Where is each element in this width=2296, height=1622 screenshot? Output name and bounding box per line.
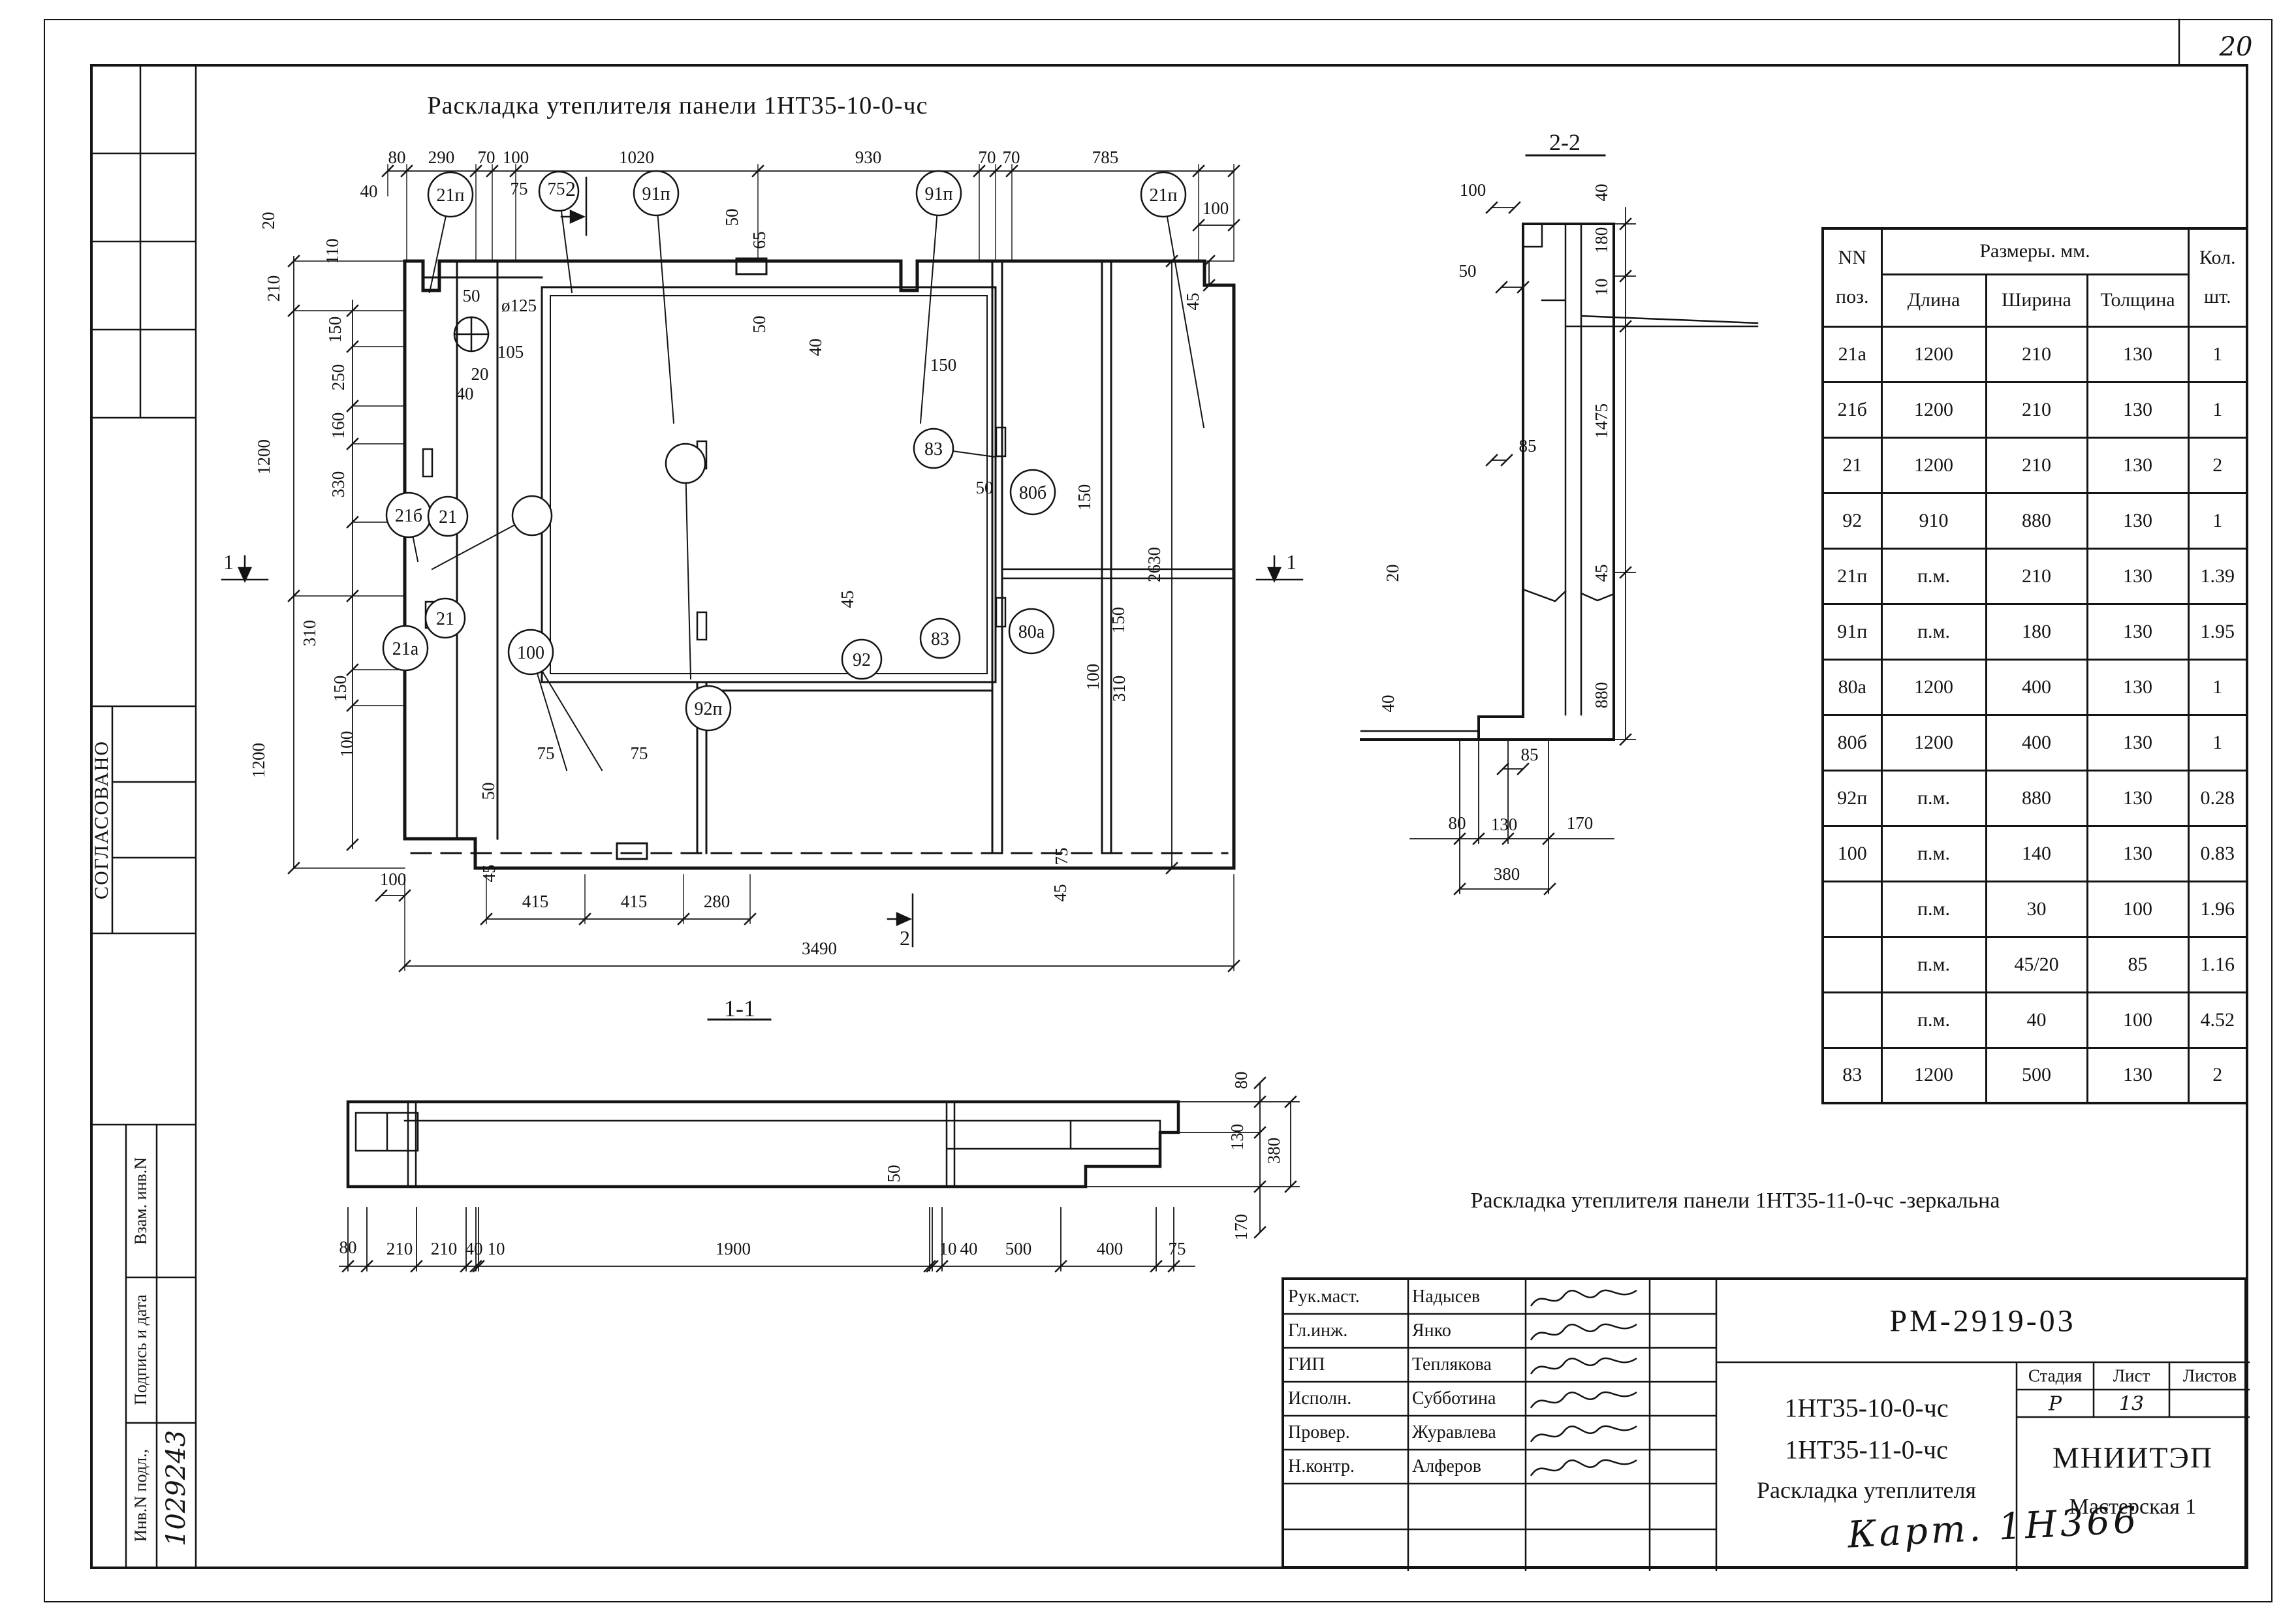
- dim-label: 40: [465, 1239, 483, 1258]
- table-cell: 1200: [1881, 437, 1986, 493]
- table-cell: 21a: [1823, 326, 1881, 382]
- svg-text:21: 21: [439, 507, 457, 527]
- table-cell: 30: [1986, 881, 2087, 937]
- table-cell: 21: [1823, 437, 1881, 493]
- person-name: Субботина: [1412, 1388, 1523, 1409]
- col-header-pos: NNпоз.: [1823, 228, 1881, 326]
- organization-name: МНИИТЭП: [2052, 1441, 2213, 1475]
- balloon-100: 100: [509, 630, 553, 674]
- dim-label: 70: [979, 148, 996, 167]
- table-cell: 130: [2087, 493, 2188, 548]
- table-row: 8312005001302: [1823, 1048, 2247, 1103]
- dim-label: 20: [471, 364, 489, 384]
- dim-label: 80: [1231, 1072, 1251, 1089]
- table-cell: п.м.: [1881, 548, 1986, 604]
- table-cell: п.м.: [1881, 937, 1986, 992]
- dim-label: 100: [380, 869, 407, 889]
- section-1-1-label: 1-1: [724, 995, 755, 1022]
- dim-label: 380: [1494, 864, 1520, 884]
- person-name: Янко: [1412, 1320, 1523, 1341]
- table-cell: 100: [2087, 881, 2188, 937]
- dim-label: 380: [1264, 1138, 1283, 1164]
- person-name: Теплякова: [1412, 1354, 1523, 1375]
- table-cell: 130: [2087, 326, 2188, 382]
- dim-label: 50: [749, 316, 769, 334]
- dim-label: 150: [325, 317, 345, 343]
- person-role: Н.контр.: [1288, 1456, 1406, 1477]
- dim-label: 85: [1521, 745, 1539, 764]
- dim-label: 75: [631, 743, 648, 763]
- person-name: Надысев: [1412, 1287, 1523, 1307]
- table-cell: 1.95: [2188, 604, 2247, 659]
- sheet-label: Лист: [2113, 1366, 2150, 1386]
- dim-label: 880: [1592, 682, 1611, 709]
- table-cell: 880: [1986, 770, 2087, 826]
- table-row: 21a12002101301: [1823, 326, 2247, 382]
- table-cell: 1200: [1881, 715, 1986, 770]
- signature-squiggle: [1531, 1290, 1637, 1306]
- table-cell: 4.52: [2188, 992, 2247, 1048]
- section-marker-label: 1: [1286, 550, 1297, 574]
- dim-label: 210: [431, 1239, 458, 1258]
- balloons: 21п91п91п21п21б212121a10092п928380б80a83: [383, 171, 1186, 730]
- table-cell: 40: [1986, 992, 2087, 1048]
- balloon-21б: 21б: [386, 493, 431, 537]
- dimension-labels: 8029070100102093070707851002011040210150…: [223, 148, 1611, 1258]
- svg-text:21б: 21б: [395, 506, 422, 526]
- table-row: 21б12002101301: [1823, 382, 2247, 437]
- dim-label: 50: [976, 478, 994, 497]
- dim-label: 45: [1050, 884, 1070, 902]
- section-label-underlines: [708, 155, 1605, 1020]
- table-cell: 1200: [1881, 659, 1986, 715]
- page-number: 20: [2220, 32, 2253, 62]
- dim-label: 150: [930, 355, 957, 375]
- table-cell: 1200: [1881, 382, 1986, 437]
- panel-code-2: 1НТ35-11-0-чс: [1785, 1435, 1948, 1465]
- table-cell: п.м.: [1881, 604, 1986, 659]
- dim-label: 45: [1592, 565, 1611, 582]
- signatures: [1531, 1290, 1637, 1476]
- dim-label: 110: [322, 238, 342, 264]
- table-row: 91пп.м.1801301.95: [1823, 604, 2247, 659]
- dim-label: 160: [328, 413, 348, 439]
- table-row: п.м.301001.96: [1823, 881, 2247, 937]
- table-cell: 100: [1823, 826, 1881, 881]
- table-cell: 130: [2087, 437, 2188, 493]
- dim-label: 45: [1183, 293, 1203, 311]
- dim-label: 75: [548, 179, 565, 198]
- table-cell: 0.83: [2188, 826, 2247, 881]
- table-row: п.м.45/20851.16: [1823, 937, 2247, 992]
- dim-label: 65: [749, 232, 769, 249]
- dim-label: 40: [806, 339, 825, 356]
- dim-label: 2630: [1144, 547, 1164, 582]
- dim-label: 100: [1460, 180, 1486, 200]
- dim-label: 150: [1075, 484, 1094, 511]
- table-cell: 500: [1986, 1048, 2087, 1103]
- table-cell: п.м.: [1881, 826, 1986, 881]
- table-cell: [1823, 937, 1881, 992]
- table-cell: 1: [2188, 382, 2247, 437]
- signature-squiggle: [1531, 1358, 1637, 1374]
- signature-squiggle: [1531, 1460, 1637, 1476]
- balloon-21п: 21п: [428, 172, 473, 217]
- signature-squiggle: [1531, 1392, 1637, 1408]
- section-marker-label: 2: [565, 177, 576, 200]
- insulation-spec-table: NNпоз. Размеры. мм. Кол.шт. Длина Ширина…: [1821, 227, 2248, 1104]
- svg-text:100: 100: [517, 643, 544, 663]
- dim-label: 80: [388, 148, 406, 167]
- table-cell: 210: [1986, 548, 2087, 604]
- dim-label: ø125: [501, 296, 537, 315]
- section-2-2-label: 2-2: [1549, 129, 1580, 156]
- table-row: 2112002101302: [1823, 437, 2247, 493]
- dim-label: 10: [1592, 279, 1611, 296]
- table-cell: 140: [1986, 826, 2087, 881]
- table-cell: 400: [1986, 659, 2087, 715]
- person-role: Провер.: [1288, 1422, 1406, 1443]
- balloon-91п: 91п: [917, 171, 961, 215]
- person-role: Рук.маст.: [1288, 1287, 1406, 1307]
- mirror-note: Раскладка утеплителя панели 1НТ35-11-0-ч…: [1471, 1189, 2000, 1213]
- dim-label: 75: [1169, 1239, 1186, 1258]
- dim-label: 50: [884, 1165, 904, 1183]
- dim-label: 10: [488, 1239, 505, 1258]
- dim-label: 40: [1378, 695, 1398, 713]
- table-cell: 80a: [1823, 659, 1881, 715]
- dim-label: 105: [497, 342, 524, 362]
- table-cell: 1200: [1881, 326, 1986, 382]
- person-name: Алферов: [1412, 1456, 1523, 1477]
- dim-label: 290: [428, 148, 455, 167]
- table-cell: 1.16: [2188, 937, 2247, 992]
- stamp-vzam-label: Взам. инв.N: [131, 1157, 151, 1245]
- hole-symbol: [454, 317, 488, 351]
- table-cell: 130: [2087, 1048, 2188, 1103]
- col-header-sizes: Размеры. мм.: [1881, 228, 2188, 274]
- balloon-80б: 80б: [1011, 470, 1055, 514]
- svg-text:83: 83: [924, 439, 943, 460]
- svg-text:80a: 80a: [1018, 622, 1045, 642]
- plan-insulation-boards: [423, 258, 1234, 859]
- table-cell: 100: [2087, 992, 2188, 1048]
- balloon-21a: 21a: [383, 626, 428, 670]
- stage-value: Р: [2049, 1393, 2062, 1416]
- table-cell: 1.96: [2188, 881, 2247, 937]
- document-number: РМ-2919-03: [1889, 1303, 2075, 1339]
- dim-label: 130: [1227, 1124, 1247, 1151]
- balloon-92: 92: [842, 640, 881, 679]
- title-block: Рук.маст.НадысевГл.инж.ЯнкоГИПТепляковаИ…: [1282, 1277, 2247, 1568]
- panel-code-1: 1НТ35-10-0-чс: [1784, 1393, 1948, 1424]
- table-cell: [1823, 881, 1881, 937]
- table-cell: 1200: [1881, 1048, 1986, 1103]
- dim-label: 40: [960, 1239, 978, 1258]
- balloon-92п: 92п: [686, 686, 731, 730]
- balloon-91п: 91п: [634, 171, 678, 215]
- dim-label: 1200: [249, 743, 268, 778]
- dim-label: 210: [386, 1239, 413, 1258]
- dim-label: 415: [522, 892, 549, 911]
- dim-label: 50: [722, 209, 742, 226]
- svg-text:83: 83: [931, 629, 949, 649]
- stamp-podpis-label: Подпись и дата: [131, 1294, 151, 1405]
- table-cell: 210: [1986, 437, 2087, 493]
- dim-label: 170: [1567, 813, 1594, 833]
- table-cell: 45/20: [1986, 937, 2087, 992]
- table-cell: 2: [2188, 437, 2247, 493]
- stage-label: Стадия: [2028, 1366, 2082, 1386]
- section-marker-label: 1: [223, 550, 234, 574]
- table-cell: 21б: [1823, 382, 1881, 437]
- table-cell: п.м.: [1881, 992, 1986, 1048]
- balloon-leader: [920, 193, 939, 423]
- person-role: ГИП: [1288, 1354, 1406, 1375]
- table-row: 100п.м.1401300.83: [1823, 826, 2247, 881]
- dim-label: 20: [259, 212, 278, 230]
- dim-label: 310: [300, 620, 319, 647]
- section-2-2-geometry: [1361, 208, 1757, 894]
- balloon-leader: [656, 193, 674, 423]
- svg-text:91п: 91п: [642, 184, 670, 204]
- table-cell: [1823, 992, 1881, 1048]
- dim-label: 250: [328, 364, 348, 391]
- dim-label: 80: [1449, 813, 1466, 833]
- dim-label: 1475: [1592, 403, 1611, 439]
- col-header-width: Ширина: [1986, 274, 2087, 326]
- table-cell: 91п: [1823, 604, 1881, 659]
- dim-label: 415: [621, 892, 648, 911]
- dim-label: 70: [478, 148, 495, 167]
- signature-squiggle: [1531, 1426, 1637, 1442]
- balloon-leader: [1163, 195, 1204, 428]
- dim-label: 280: [704, 892, 731, 911]
- dim-label: 1020: [619, 148, 654, 167]
- table-cell: 910: [1881, 493, 1986, 548]
- svg-text:21: 21: [436, 609, 454, 629]
- table-cell: 92: [1823, 493, 1881, 548]
- svg-text:21п: 21п: [437, 185, 465, 206]
- dim-label: 1200: [254, 439, 274, 475]
- table-cell: 130: [2087, 604, 2188, 659]
- dim-label: 400: [1097, 1239, 1124, 1258]
- col-header-thickness: Толщина: [2087, 274, 2188, 326]
- dim-label: 40: [1592, 184, 1611, 202]
- table-cell: 130: [2087, 770, 2188, 826]
- table-cell: 130: [2087, 382, 2188, 437]
- drawing-sheet: 21п91п91п21п21б212121a10092п928380б80a83…: [0, 0, 2296, 1622]
- balloon-21п: 21п: [1141, 172, 1186, 217]
- dim-label: 330: [328, 471, 348, 498]
- dim-label: 170: [1231, 1214, 1251, 1241]
- table-row: 80a12004001301: [1823, 659, 2247, 715]
- dim-label: 150: [1109, 607, 1128, 634]
- dim-label: 20: [1383, 565, 1402, 582]
- dim-label: 85: [1519, 436, 1537, 456]
- table-cell: 210: [1986, 382, 2087, 437]
- drawing-subtitle: Раскладка утеплителя: [1757, 1476, 1976, 1504]
- dim-label: 210: [264, 275, 283, 302]
- table-cell: 400: [1986, 715, 2087, 770]
- lifting-anchor: [617, 843, 647, 859]
- balloon-empty: [666, 444, 705, 483]
- person-role: Исполн.: [1288, 1388, 1406, 1409]
- col-header-qty: Кол.шт.: [2188, 228, 2247, 326]
- dim-label: 150: [330, 676, 350, 702]
- table-cell: 83: [1823, 1048, 1881, 1103]
- table-cell: п.м.: [1881, 881, 1986, 937]
- dim-label: 3490: [802, 939, 837, 958]
- dim-label: 100: [1083, 664, 1103, 691]
- table-cell: п.м.: [1881, 770, 1986, 826]
- dim-label: 75: [1052, 848, 1071, 866]
- svg-text:91п: 91п: [925, 184, 953, 204]
- plan-title: Раскладка утеплителя панели 1НТ35-10-0-ч…: [427, 91, 928, 120]
- dim-label: 40: [456, 384, 474, 403]
- table-cell: 130: [2087, 659, 2188, 715]
- table-cell: 1: [2188, 493, 2247, 548]
- table-cell: 92п: [1823, 770, 1881, 826]
- table-cell: 130: [2087, 826, 2188, 881]
- table-row: 21пп.м.2101301.39: [1823, 548, 2247, 604]
- balloon-leader: [685, 463, 691, 679]
- dim-label: 75: [537, 743, 555, 763]
- table-cell: 130: [2087, 548, 2188, 604]
- table-cell: 21п: [1823, 548, 1881, 604]
- balloon-21: 21: [426, 599, 465, 638]
- section-1-1-geometry: [339, 1083, 1299, 1271]
- table-cell: 1.39: [2188, 548, 2247, 604]
- dim-label: 180: [1592, 227, 1611, 254]
- table-cell: 2: [2188, 1048, 2247, 1103]
- dim-label: 310: [1109, 676, 1129, 702]
- person-name: Журавлева: [1412, 1422, 1523, 1443]
- balloon-empty: [512, 496, 552, 535]
- svg-text:92п: 92п: [695, 699, 723, 719]
- table-cell: 1: [2188, 659, 2247, 715]
- table-row: п.м.401004.52: [1823, 992, 2247, 1048]
- table-row: 929108801301: [1823, 493, 2247, 548]
- dim-label: 785: [1092, 148, 1119, 167]
- dim-label: 50: [463, 286, 480, 305]
- dim-label: 80: [339, 1238, 357, 1257]
- table-row: 92пп.м.8801300.28: [1823, 770, 2247, 826]
- balloon-83: 83: [920, 619, 960, 658]
- dim-label: 75: [511, 179, 528, 198]
- inventory-number-handwritten: 1029243: [161, 1430, 191, 1546]
- col-header-length: Длина: [1881, 274, 1986, 326]
- table-cell: 80б: [1823, 715, 1881, 770]
- dim-label: 130: [1491, 815, 1518, 834]
- dim-label: 10: [939, 1239, 957, 1258]
- dim-label: 1900: [716, 1239, 751, 1258]
- person-role: Гл.инж.: [1288, 1320, 1406, 1341]
- table-cell: 130: [2087, 715, 2188, 770]
- sheet-value: 13: [2119, 1393, 2144, 1416]
- dim-label: 45: [838, 591, 857, 608]
- table-cell: 880: [1986, 493, 2087, 548]
- dim-label: 100: [503, 148, 529, 167]
- table-cell: 1: [2188, 326, 2247, 382]
- sheets-label: Листов: [2183, 1366, 2237, 1386]
- svg-text:21a: 21a: [392, 639, 419, 659]
- section-cut-markers: [222, 178, 1302, 946]
- dim-label: 70: [1003, 148, 1020, 167]
- table-cell: 180: [1986, 604, 2087, 659]
- svg-text:92: 92: [853, 650, 871, 670]
- balloon-83: 83: [914, 429, 953, 468]
- stamp-approved-label: СОГЛАСОВАНО: [91, 740, 113, 899]
- dimension-ticks: [289, 166, 1631, 1271]
- svg-text:80б: 80б: [1019, 483, 1046, 503]
- dim-label: 930: [855, 148, 882, 167]
- dim-label: 500: [1005, 1239, 1032, 1258]
- dim-label: 40: [360, 181, 378, 201]
- dim-label: 45: [479, 865, 499, 882]
- section-marker-label: 2: [900, 926, 910, 950]
- dim-label: 50: [1459, 261, 1477, 281]
- workshop-name: Мастерская 1: [2069, 1495, 2197, 1520]
- dim-label: 100: [1203, 198, 1229, 218]
- balloon-80a: 80a: [1009, 609, 1054, 653]
- dim-label: 50: [479, 783, 498, 800]
- svg-text:21п: 21п: [1150, 185, 1178, 206]
- signature-squiggle: [1531, 1324, 1637, 1340]
- table-row: 80б12004001301: [1823, 715, 2247, 770]
- table-cell: 210: [1986, 326, 2087, 382]
- stamp-inv-label: Инв.N подл.,: [131, 1449, 151, 1542]
- table-cell: 0.28: [2188, 770, 2247, 826]
- table-cell: 1: [2188, 715, 2247, 770]
- table-cell: 85: [2087, 937, 2188, 992]
- balloon-21: 21: [428, 497, 467, 536]
- dim-label: 100: [337, 731, 356, 758]
